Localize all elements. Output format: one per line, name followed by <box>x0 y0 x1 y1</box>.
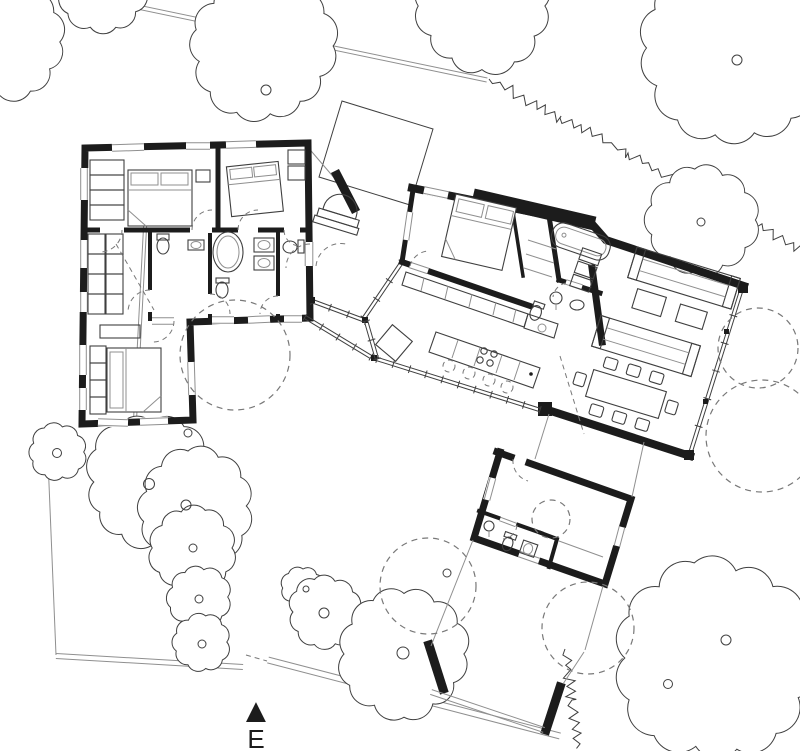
door-swing-arc <box>316 243 346 266</box>
tree-canopy-dashed <box>718 308 798 388</box>
bed <box>226 161 283 216</box>
side-table <box>376 325 413 362</box>
sink-basin <box>538 324 546 332</box>
headboard-shelf <box>90 380 106 397</box>
window <box>80 388 87 410</box>
bathroom-2 <box>213 232 274 298</box>
window <box>212 317 234 324</box>
coffee-table <box>632 289 667 317</box>
jamb <box>738 283 748 293</box>
window <box>423 187 448 198</box>
drain <box>561 233 566 238</box>
basin <box>191 242 201 249</box>
jamb <box>684 450 694 460</box>
wardrobe <box>106 294 123 314</box>
glazed-wall <box>311 297 368 325</box>
toilet-tank <box>533 301 545 309</box>
island-dot <box>529 372 533 376</box>
tree-trunk <box>443 569 451 577</box>
walkway-edge <box>632 442 644 497</box>
window <box>81 168 88 200</box>
bathtub-inner <box>217 236 239 268</box>
desk <box>100 325 140 338</box>
dining-chair <box>611 410 627 424</box>
tree-canopy-dashed <box>180 300 290 410</box>
jamb <box>309 297 315 303</box>
dining-chair <box>626 364 642 378</box>
dining-table <box>586 370 667 419</box>
counter-east <box>524 314 558 338</box>
dining-chair <box>589 403 605 417</box>
door-opening <box>499 517 516 526</box>
window <box>484 477 495 500</box>
window <box>403 212 413 241</box>
toilet-tank <box>157 234 169 240</box>
hedge-southeast <box>563 649 581 748</box>
door-swing-arc <box>553 283 566 297</box>
north-terrace <box>306 101 433 235</box>
wardrobe <box>88 254 105 274</box>
wardrobe <box>90 160 124 175</box>
wardrobe <box>90 175 124 190</box>
tree-canopy <box>59 0 148 34</box>
tree-canopy <box>640 0 800 144</box>
jamb <box>724 329 729 334</box>
window <box>614 526 624 546</box>
door-opening <box>305 242 313 266</box>
headboard-shelf <box>90 346 106 363</box>
bed <box>107 348 161 412</box>
kitchen-island <box>429 332 540 388</box>
annex <box>474 356 644 584</box>
dining-chair <box>573 372 587 388</box>
basin <box>258 241 270 250</box>
dining-chair <box>603 357 619 371</box>
tree-canopy <box>29 423 86 481</box>
closet <box>288 166 305 180</box>
wardrobe <box>88 294 105 314</box>
coffee-table <box>675 304 707 329</box>
window <box>188 362 196 395</box>
wardrobe <box>88 274 105 294</box>
link-corridor <box>303 260 405 361</box>
headboard-shelf <box>90 363 106 380</box>
toilet <box>283 241 297 253</box>
tree-canopy-dashed <box>706 380 800 492</box>
exterior-wall <box>548 410 690 456</box>
window <box>80 345 87 375</box>
wardrobe <box>106 274 123 294</box>
window <box>284 316 302 323</box>
wardrobe <box>88 234 105 254</box>
closet-wall <box>513 212 523 276</box>
door-opening <box>565 280 582 289</box>
window <box>186 143 210 150</box>
stool-dashed <box>443 360 455 372</box>
headboard-shelf <box>90 397 106 414</box>
walkway-edge <box>535 414 549 459</box>
bed <box>442 194 517 270</box>
stool-dashed <box>483 374 495 386</box>
site-plan-svg: ▲ E <box>0 0 800 751</box>
sofa <box>592 315 701 376</box>
dining-chair <box>634 417 650 431</box>
sink <box>570 300 584 310</box>
left-wing <box>80 141 313 427</box>
bedroom-1 <box>90 160 210 226</box>
master-bedroom <box>442 194 517 270</box>
porch-wall <box>337 175 354 208</box>
nightstand <box>196 170 210 182</box>
gate-dashes <box>246 655 267 661</box>
stool-dashed <box>463 367 475 379</box>
compass: ▲ E <box>239 692 273 751</box>
compass-label: E <box>247 724 264 751</box>
bedroom-2 <box>226 150 305 217</box>
bathroom-1 <box>157 234 204 254</box>
window <box>248 316 270 324</box>
wardrobe <box>106 254 123 274</box>
door-opening <box>152 318 174 325</box>
jamb <box>703 399 708 404</box>
wardrobe <box>106 234 123 254</box>
dining-chair <box>649 371 665 385</box>
terrace-edge <box>585 586 603 650</box>
hall-wardrobes <box>88 234 123 314</box>
kitchen <box>376 272 558 393</box>
glazed-wall <box>361 260 406 320</box>
cooktop <box>477 348 497 366</box>
tree-canopy <box>415 0 550 74</box>
wardrobe <box>90 205 124 220</box>
window <box>140 418 168 426</box>
window <box>81 292 88 312</box>
basin <box>258 259 270 268</box>
tree-canopy <box>172 613 229 671</box>
courtyard-tree-dashed <box>532 500 570 538</box>
window <box>98 419 128 427</box>
tree-canopy <box>190 0 338 122</box>
tree-canopy <box>0 0 65 101</box>
glazed-wall <box>362 320 381 360</box>
door-swing-arc <box>100 230 122 252</box>
stool-dashed <box>501 381 513 393</box>
window <box>81 240 88 268</box>
dining-chair <box>664 400 678 416</box>
door-opening <box>409 262 429 273</box>
window <box>112 144 144 152</box>
bedroom-3 <box>90 325 161 414</box>
sink <box>550 292 562 304</box>
terrace-wall <box>546 687 560 730</box>
floor-plan-page: ▲ E <box>0 0 800 751</box>
closet <box>288 150 305 164</box>
wardrobe <box>90 190 124 205</box>
outdoor-fireplace <box>313 188 367 235</box>
toilet <box>216 282 228 298</box>
island-divisions <box>452 340 520 380</box>
glazed-wall-east <box>686 287 746 455</box>
window <box>226 141 256 149</box>
sink <box>484 521 494 531</box>
bed <box>128 170 192 226</box>
glazed-wall-kitchen <box>376 355 541 414</box>
tree-canopy <box>616 556 800 751</box>
bench-line <box>559 541 603 557</box>
